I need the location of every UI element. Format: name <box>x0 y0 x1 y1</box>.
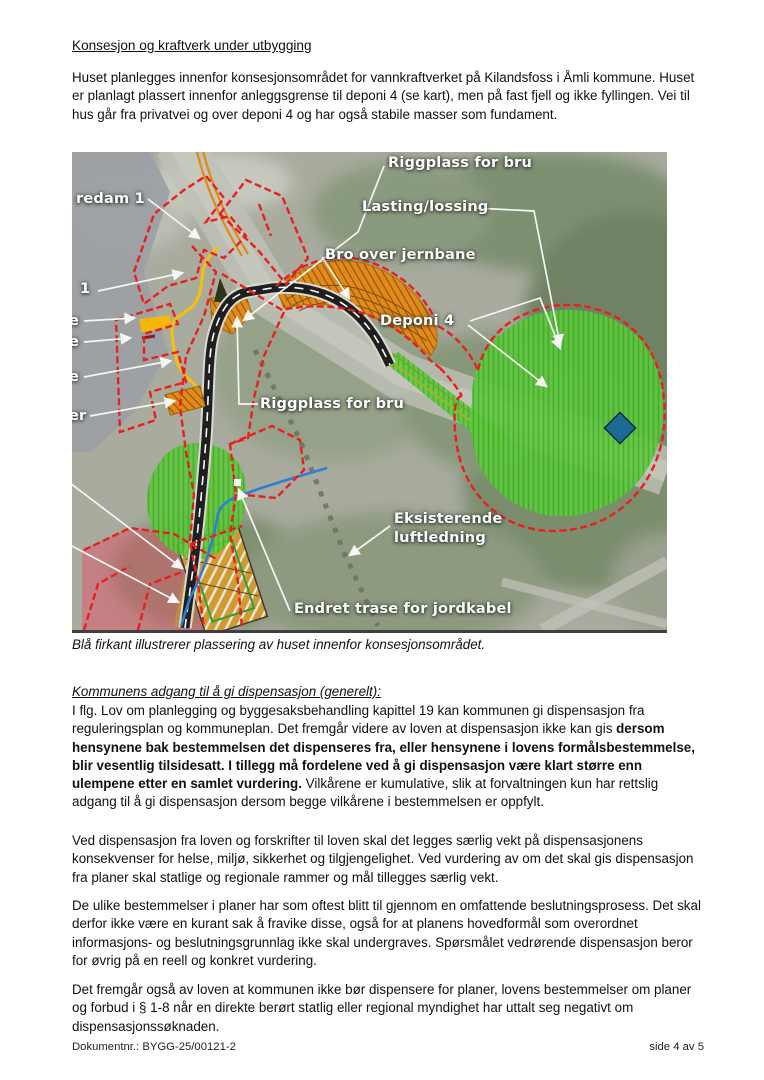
paragraph-saerlig-vekt: Ved dispensasjon fra loven og forskrifte… <box>72 832 704 887</box>
page-title: Konsesjon og kraftverk under utbygging <box>72 38 312 53</box>
paragraph-beslutningsprosess: De ulike bestemmelser i planer har som o… <box>72 897 704 970</box>
paragraph-dispensasjon-vilkar: I flg. Lov om planlegging og byggesaksbe… <box>72 702 704 812</box>
map-figure: Riggplass for bruLasting/lossingBro over… <box>72 152 667 633</box>
page-number: side 4 av 5 <box>649 1041 704 1053</box>
page-footer: Dokumentnr.: BYGG-25/00121-2 side 4 av 5 <box>72 1041 704 1053</box>
map-illustration <box>72 152 667 630</box>
document-number: Dokumentnr.: BYGG-25/00121-2 <box>72 1041 236 1053</box>
intro-paragraph: Huset planlegges innenfor konsesjonsområ… <box>72 69 704 124</box>
paragraph-statlig-myndighet: Det fremgår også av loven at kommunen ik… <box>72 981 704 1036</box>
section-heading-dispensasjon: Kommunens adgang til å gi dispensasjon (… <box>72 684 381 699</box>
document-page: Konsesjon og kraftverk under utbygging H… <box>0 0 764 1080</box>
figure-caption: Blå firkant illustrerer plassering av hu… <box>72 637 704 652</box>
